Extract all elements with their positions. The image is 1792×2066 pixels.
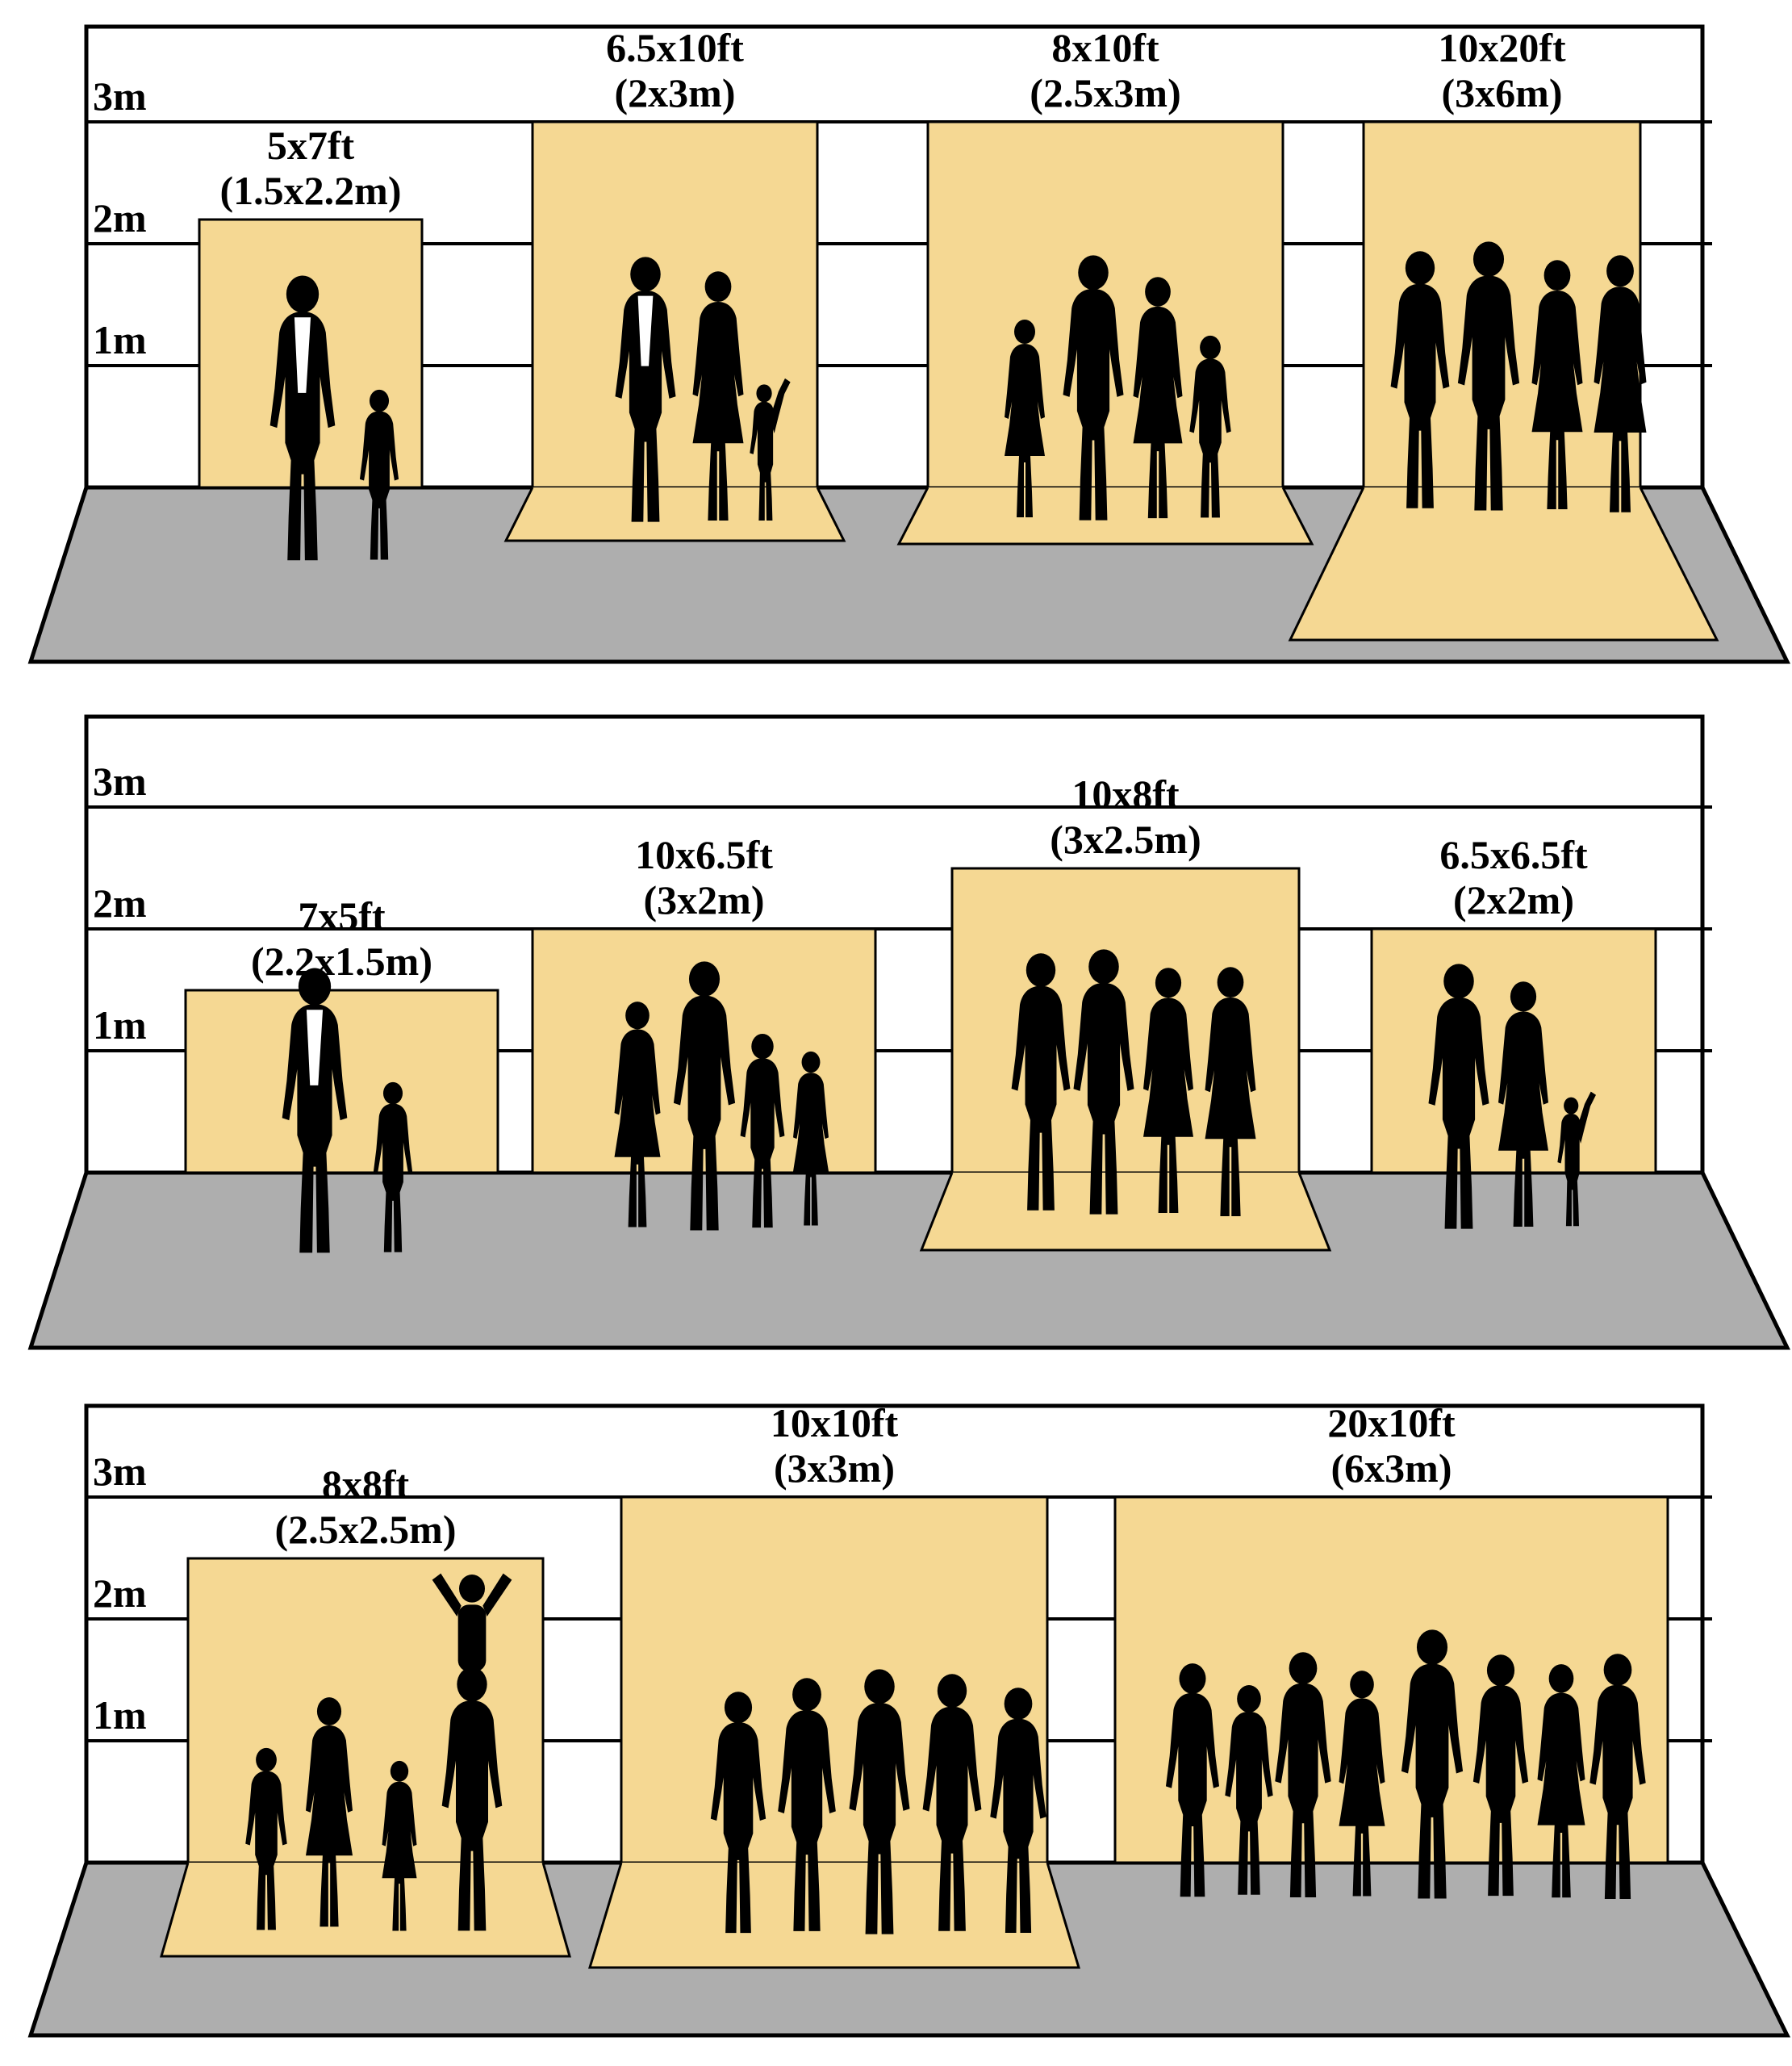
backdrop-label-m: (3x2.5m) [1050,817,1201,862]
studio-floor [31,1173,1787,1348]
backdrop-label-ft: 10x6.5ft [635,832,773,877]
backdrop-label-20x10ft: 20x10ft(6x3m) [1327,1400,1455,1491]
backdrop-label-m: (3x6m) [1438,70,1565,115]
meter-label-3m: 3m [93,759,147,804]
backdrop-size-comparison-figure: 1m2m3m5x7ft(1.5x2.2m)6.5x10ft(2x3m)8x10f… [0,0,1792,2066]
meter-label-2m: 2m [93,195,147,240]
backdrop-label-ft: 10x20ft [1438,25,1565,70]
backdrop-label-10x10ft: 10x10ft(3x3m) [771,1400,898,1491]
scene-graphics [0,0,1792,2066]
backdrop-label-m: (2x2m) [1439,877,1587,922]
meter-label-2m: 2m [93,1570,147,1616]
meter-label-2m: 2m [93,880,147,926]
backdrop-label-m: (3x2m) [635,877,773,922]
backdrop-label-6.5x6.5ft: 6.5x6.5ft(2x2m) [1439,832,1587,922]
backdrop-label-ft: 6.5x10ft [606,25,744,70]
panel-2 [31,717,1787,1348]
backdrop-label-m: (6x3m) [1327,1445,1455,1491]
meter-label-1m: 1m [93,1692,147,1738]
backdrop-label-10x20ft: 10x20ft(3x6m) [1438,25,1565,115]
backdrop-label-5x7ft: 5x7ft(1.5x2.2m) [220,123,402,213]
meter-label-1m: 1m [93,317,147,362]
backdrop-label-8x8ft: 8x8ft(2.5x2.5m) [275,1462,457,1552]
panels-group [31,27,1787,2035]
backdrop-label-6.5x10ft: 6.5x10ft(2x3m) [606,25,744,115]
backdrop-label-10x6.5ft: 10x6.5ft(3x2m) [635,832,773,922]
backdrop-6.5x10ft [533,122,817,487]
backdrop-label-m: (1.5x2.2m) [220,168,402,213]
backdrop-sweep-6.5x10ft [506,487,844,541]
backdrop-label-m: (2.5x2.5m) [275,1507,457,1552]
backdrop-label-7x5ft: 7x5ft(2.2x1.5m) [251,893,432,984]
backdrop-label-ft: 7x5ft [251,893,432,939]
meter-label-1m: 1m [93,1002,147,1048]
backdrop-label-10x8ft: 10x8ft(3x2.5m) [1050,772,1201,862]
backdrop-label-8x10ft: 8x10ft(2.5x3m) [1030,25,1180,115]
backdrop-label-ft: 8x10ft [1030,25,1180,70]
meter-label-3m: 3m [93,73,147,119]
backdrop-sweep-8x8ft [161,1863,570,1956]
backdrop-label-ft: 5x7ft [220,123,402,168]
backdrop-sweep-10x10ft [590,1863,1079,1968]
backdrop-label-m: (2x3m) [606,70,744,115]
backdrop-label-m: (2.2x1.5m) [251,939,432,984]
backdrop-label-ft: 10x8ft [1050,772,1201,817]
backdrop-label-m: (2.5x3m) [1030,70,1180,115]
backdrop-label-ft: 6.5x6.5ft [1439,832,1587,877]
backdrop-label-ft: 10x10ft [771,1400,898,1445]
backdrop-label-ft: 8x8ft [275,1462,457,1507]
backdrop-sweep-10x8ft [921,1173,1330,1250]
meter-label-3m: 3m [93,1449,147,1494]
backdrop-label-m: (3x3m) [771,1445,898,1491]
backdrop-label-ft: 20x10ft [1327,1400,1455,1445]
